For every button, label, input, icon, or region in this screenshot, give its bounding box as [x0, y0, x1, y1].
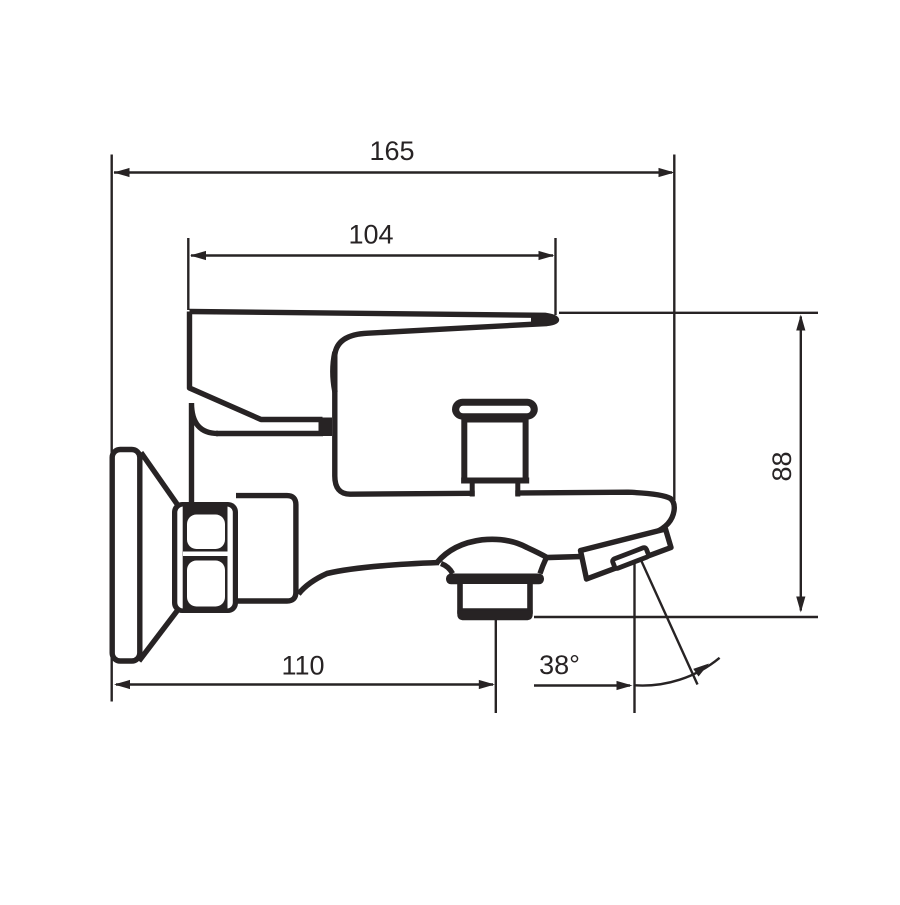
svg-text:165: 165 — [369, 136, 414, 166]
svg-text:38°: 38° — [539, 650, 580, 680]
svg-text:110: 110 — [281, 651, 324, 681]
svg-text:104: 104 — [348, 220, 393, 250]
svg-text:88: 88 — [767, 451, 797, 481]
